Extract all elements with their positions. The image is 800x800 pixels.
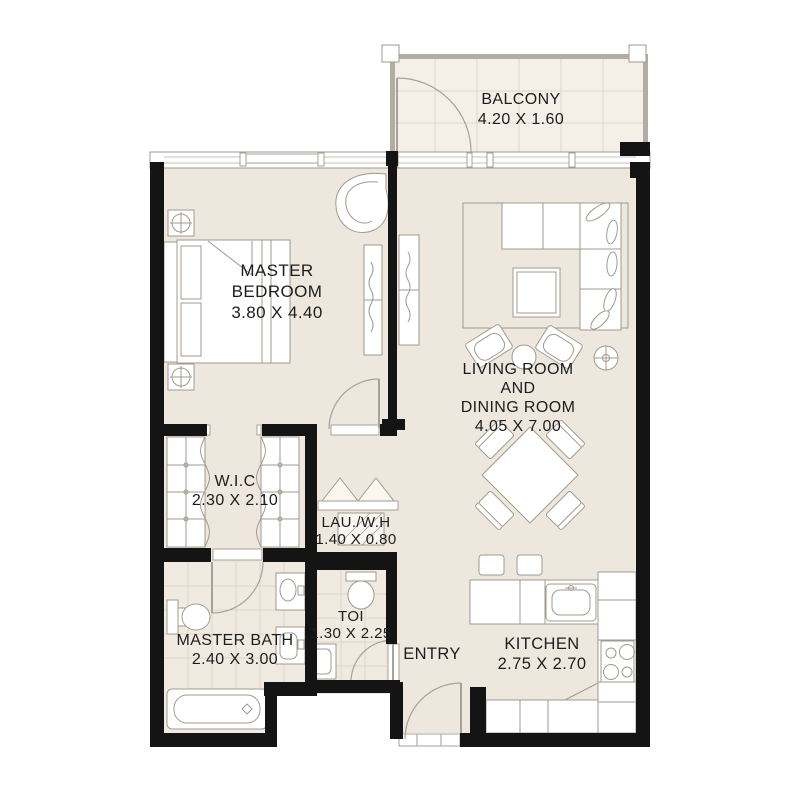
tv-console-living: [399, 235, 419, 345]
room-name: MASTER BATH: [176, 631, 293, 650]
bath-door-threshold: [213, 549, 262, 560]
room-name: ENTRY: [403, 645, 461, 664]
exterior-notch: [277, 694, 390, 733]
room-dims: 1.40 X 0.80: [315, 531, 396, 548]
floor-lamp: [594, 346, 618, 370]
room-dims: 2.30 X 2.10: [192, 491, 278, 510]
room-name: LAU./W.H: [315, 514, 396, 531]
master-bath-label: MASTER BATH 2.40 X 3.00: [176, 631, 293, 669]
room-dims: 2.75 X 2.70: [498, 654, 587, 674]
room-name: AND: [461, 379, 576, 398]
bedroom-door-threshold: [331, 425, 379, 435]
kitchen-sink: [546, 584, 596, 621]
laundry-label: LAU./W.H 1.40 X 0.80: [315, 514, 396, 548]
room-name: TOI: [310, 608, 391, 625]
room-name: MASTER: [231, 260, 322, 281]
coffee-table: [513, 268, 560, 317]
vanity-sink-top: [276, 573, 305, 610]
wic-opening-jamb: [257, 425, 261, 435]
bar-stool: [479, 555, 504, 575]
balcony-post-left: [382, 45, 399, 62]
room-name: DINING ROOM: [461, 398, 576, 417]
room-dims: 4.05 X 7.00: [461, 417, 576, 436]
floor-plan-page: BALCONY 4.20 X 1.60 MASTER BEDROOM 3.80 …: [0, 0, 800, 800]
tv-console-bedroom: [364, 245, 382, 355]
room-dims: 1.30 X 2.25: [310, 625, 391, 642]
floor-plan-canvas: [0, 0, 800, 800]
room-name: BEDROOM: [231, 281, 322, 302]
room-dims: 4.20 X 1.60: [478, 110, 564, 130]
kitchen-label: KITCHEN 2.75 X 2.70: [498, 634, 587, 674]
balcony-post-right: [629, 45, 646, 62]
toilet: [346, 572, 376, 609]
master-bedroom-label: MASTER BEDROOM 3.80 X 4.40: [231, 260, 322, 323]
toi-label: TOI 1.30 X 2.25: [310, 608, 391, 642]
entry-label: ENTRY: [403, 645, 461, 664]
dining-set: [475, 420, 585, 530]
room-name: KITCHEN: [498, 634, 587, 654]
stove: [601, 641, 635, 682]
window-panel: [246, 154, 318, 163]
bifold-rail: [318, 501, 398, 510]
window-band: [150, 152, 650, 168]
bathtub: [167, 689, 267, 729]
room-name: LIVING ROOM: [461, 360, 576, 379]
wic-label: W.I.C 2.30 X 2.10: [192, 472, 278, 510]
entry-door-threshold: [399, 734, 460, 746]
room-dims: 3.80 X 4.40: [231, 302, 322, 323]
room-dims: 2.40 X 3.00: [176, 650, 293, 669]
living-dining-label: LIVING ROOM AND DINING ROOM 4.05 X 7.00: [461, 360, 576, 436]
room-name: BALCONY: [478, 90, 564, 110]
bar-stool: [517, 555, 542, 575]
balcony-label: BALCONY 4.20 X 1.60: [478, 90, 564, 130]
kitchen-wall-counter: [598, 572, 636, 733]
nightstand-top: [168, 210, 194, 236]
room-name: W.I.C: [192, 472, 278, 491]
nightstand-bottom: [168, 364, 194, 390]
